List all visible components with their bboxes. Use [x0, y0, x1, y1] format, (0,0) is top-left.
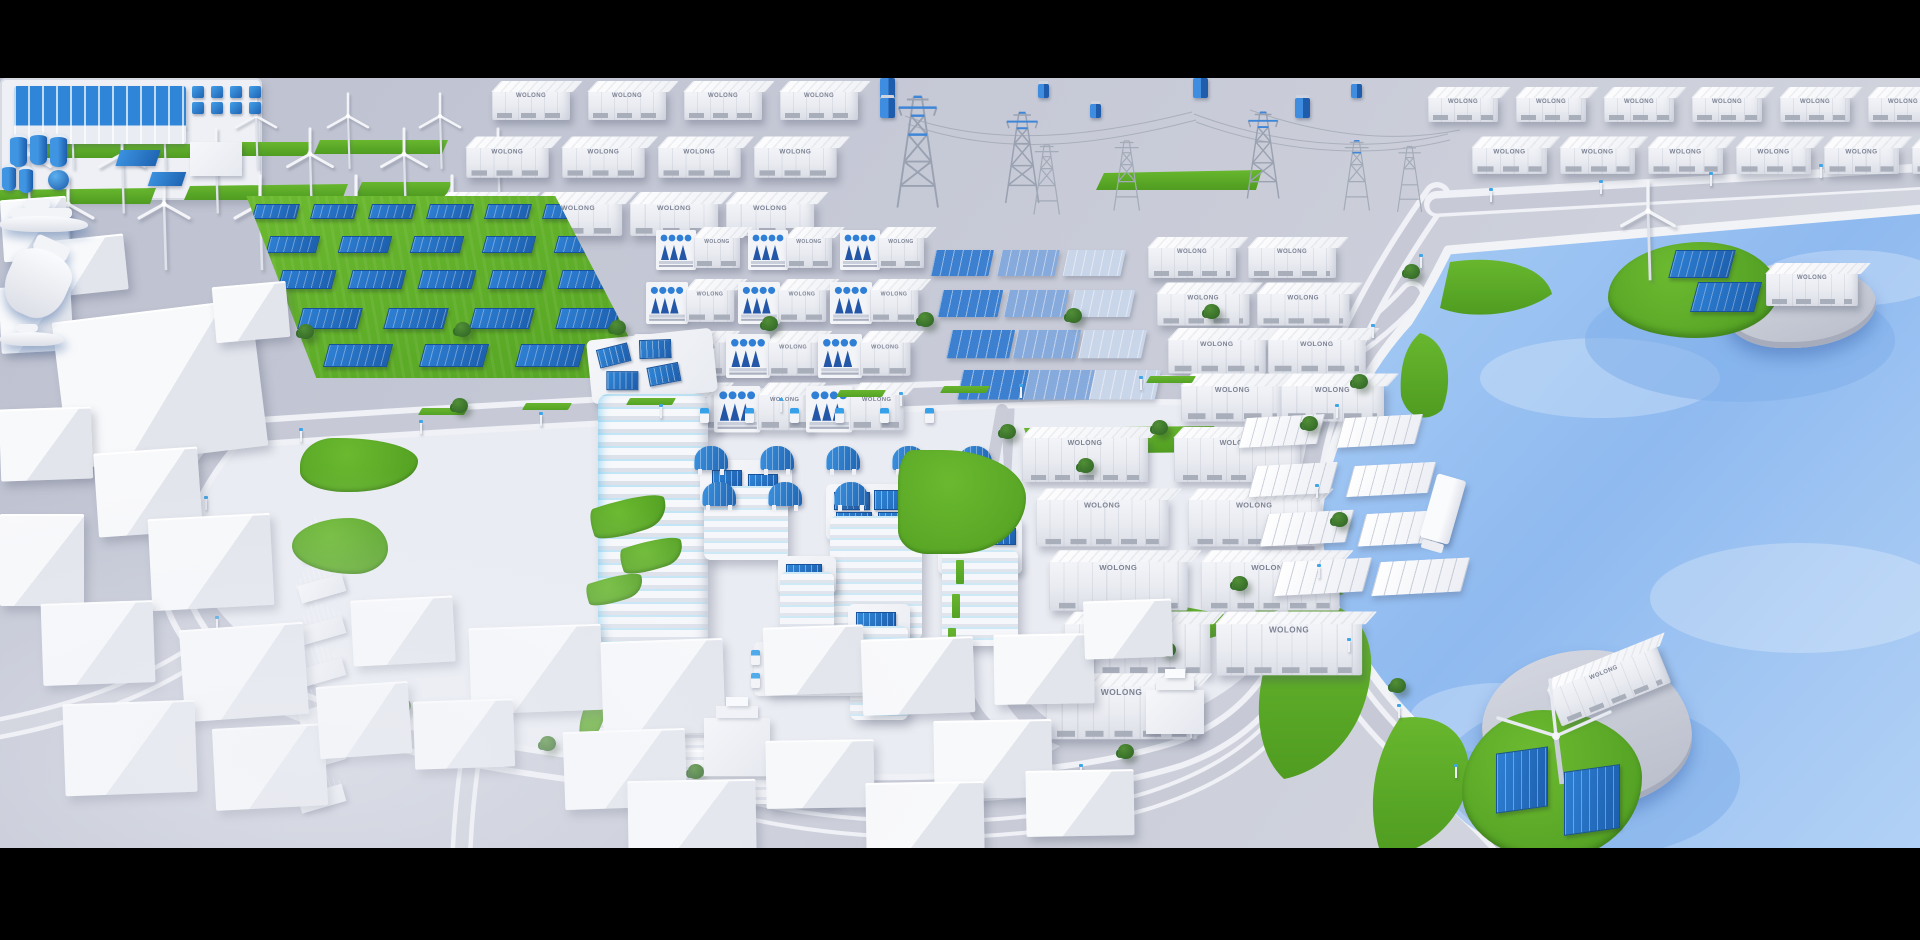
storage-yard-northeast: WOLONG WOLONGWOLONGWOLONGWOLONGWOLONGWOL… — [1428, 96, 1920, 172]
storage-container: WOLONG — [684, 90, 762, 120]
container-nameplate: WOLONG — [1669, 149, 1701, 155]
container-nameplate: WOLONG — [1757, 149, 1789, 155]
blue-bin — [230, 102, 242, 114]
solar-panel — [252, 204, 300, 219]
transmission-pylon — [1392, 140, 1427, 214]
road-median — [1146, 376, 1196, 383]
container-nameplate: WOLONG — [1269, 628, 1309, 635]
container-nameplate: WOLONG — [516, 93, 546, 99]
solar-panel — [1690, 282, 1762, 312]
battery-rack — [818, 334, 862, 378]
tree — [1232, 576, 1248, 591]
solar-carport — [694, 446, 728, 470]
transmission-pylon — [888, 86, 947, 210]
roof-solar-panel — [646, 362, 681, 387]
wind-turbine — [122, 174, 206, 274]
storage-container: WOLONG — [466, 146, 549, 178]
plant-building — [190, 142, 242, 176]
storage-tank — [2, 164, 16, 191]
street-lamp — [1600, 182, 1602, 194]
battery-cells-icon — [656, 230, 696, 270]
transformer — [1295, 98, 1310, 118]
equipment-bins — [192, 86, 264, 114]
battery-stack-unit: WOLONG — [748, 230, 832, 270]
sphere-tank — [48, 170, 69, 190]
tree — [540, 736, 556, 751]
city-building — [765, 739, 874, 809]
container-nameplate: WOLONG — [779, 149, 811, 155]
container-nameplate: WOLONG — [1797, 275, 1827, 281]
boat-hull — [0, 332, 64, 346]
container-nameplate: WOLONG — [697, 291, 724, 297]
blue-canopy — [115, 150, 160, 166]
ev-charger — [880, 408, 889, 423]
storage-container: WOLONG — [1604, 96, 1674, 122]
city-building — [993, 633, 1094, 705]
grid-substation — [880, 78, 1500, 278]
storage-container: WOLONG — [588, 90, 666, 120]
container-nameplate: WOLONG — [862, 396, 892, 403]
tree — [452, 398, 468, 413]
blue-bin — [249, 102, 261, 114]
tree — [688, 764, 704, 779]
street-lamp — [1316, 486, 1318, 498]
container-nameplate: WOLONG — [1101, 690, 1143, 697]
city-building — [1025, 769, 1134, 837]
blue-bin — [192, 102, 204, 114]
solar-panel — [1012, 330, 1081, 358]
street-lamp — [1820, 166, 1822, 178]
solar-panel — [323, 344, 393, 367]
solar-panel — [1496, 746, 1548, 813]
ev-charger — [700, 408, 709, 423]
letterbox-top — [0, 0, 1920, 78]
blue-bin — [230, 86, 242, 98]
tree — [1390, 678, 1406, 693]
solar-panel — [426, 204, 474, 219]
storage-container: WOLONG — [778, 288, 826, 322]
blue-canopy — [148, 172, 187, 186]
battery-stack-unit: WOLONG — [656, 230, 740, 270]
ev-charger — [835, 408, 844, 423]
tree — [1152, 420, 1168, 435]
city-building — [413, 698, 515, 769]
letterbox-bottom — [0, 848, 1920, 940]
solar-row — [254, 204, 588, 219]
transformer — [1090, 104, 1101, 118]
city-building — [41, 600, 156, 686]
battery-rack — [646, 282, 688, 324]
storage-container: WOLONG — [1216, 622, 1362, 675]
container-nameplate: WOLONG — [612, 93, 642, 99]
tree — [1204, 304, 1220, 319]
battery-rack — [830, 282, 872, 324]
storage-container: WOLONG — [1780, 96, 1850, 122]
street-lamp — [1372, 326, 1374, 338]
city-building — [861, 636, 976, 716]
street-lamp — [1336, 406, 1338, 418]
city-building — [0, 406, 93, 481]
city-building — [316, 681, 413, 759]
storage-container: WOLONG — [658, 146, 741, 178]
street-lamp — [900, 394, 902, 406]
container-nameplate: WOLONG — [1845, 149, 1877, 155]
battery-stack-unit: WOLONG — [830, 282, 918, 324]
container-nameplate: WOLONG — [1200, 341, 1233, 348]
solar-panel — [417, 270, 476, 289]
transformer — [880, 78, 895, 98]
storage-tank — [19, 166, 33, 193]
solar-carport — [768, 482, 802, 506]
storage-container: WOLONG — [1268, 338, 1366, 374]
street-lamp — [1398, 706, 1400, 718]
container-nameplate: WOLONG — [1536, 99, 1566, 105]
container-nameplate: WOLONG — [1187, 295, 1219, 301]
storage-container: WOLONG — [492, 90, 570, 120]
street-lamp — [420, 422, 422, 434]
transformer-bank — [880, 78, 1500, 98]
tree — [1332, 512, 1348, 527]
roof-solar-panel — [639, 339, 672, 359]
storage-tank — [10, 134, 27, 167]
tree — [1404, 264, 1420, 279]
storage-container: WOLONG — [562, 146, 645, 178]
solar-row — [268, 236, 606, 253]
energy-island-south: WOLONG — [1452, 630, 1752, 848]
solar-carport — [760, 446, 794, 470]
street-lamp — [1140, 378, 1142, 390]
city-building — [148, 513, 275, 611]
storage-container: WOLONG — [1257, 292, 1349, 326]
battery-rack — [840, 230, 880, 270]
battery-rack — [656, 230, 696, 270]
city-building — [627, 779, 756, 848]
container-nameplate: WOLONG — [1888, 99, 1918, 105]
storage-container: WOLONG — [1824, 146, 1899, 174]
storage-tank — [50, 134, 67, 167]
street-lamp — [1420, 256, 1422, 268]
city-render: WOLONG WOLONGWOLONGWOLONGWOLONGWOLONGWOL… — [0, 78, 1920, 848]
road-median — [836, 390, 886, 397]
boat-hull — [0, 216, 88, 232]
tree — [298, 324, 314, 339]
solar-carport — [834, 482, 868, 506]
road-median — [956, 560, 964, 584]
solar-panel — [469, 308, 535, 329]
container-nameplate: WOLONG — [770, 396, 800, 403]
solar-panel — [946, 330, 1015, 358]
storage-container: WOLONG — [1736, 146, 1811, 174]
tree — [1118, 744, 1134, 759]
blue-bin — [211, 86, 223, 98]
transformer — [1038, 84, 1049, 98]
ev-charger — [751, 673, 760, 688]
solar-panel — [1023, 370, 1095, 400]
container-nameplate: WOLONG — [657, 205, 691, 212]
city-building — [212, 281, 291, 343]
container-nameplate: WOLONG — [1099, 566, 1137, 573]
tree — [1302, 416, 1318, 431]
storage-container: WOLONG — [1036, 498, 1168, 546]
city-building — [62, 700, 197, 797]
solar-carport — [826, 446, 860, 470]
tree — [455, 322, 471, 337]
city-building — [179, 622, 309, 722]
battery-cells-icon — [818, 334, 862, 378]
white-solar-canopy — [1273, 557, 1373, 596]
solar-panel — [310, 204, 358, 219]
road-median — [522, 403, 572, 410]
container-nameplate: WOLONG — [796, 239, 821, 245]
battery-stack-unit: WOLONG — [726, 334, 818, 378]
blue-bin — [192, 86, 204, 98]
solar-panel — [368, 204, 416, 219]
container-nameplate: WOLONG — [1215, 388, 1250, 395]
tree — [1066, 308, 1082, 323]
container-nameplate: WOLONG — [561, 205, 595, 212]
container-nameplate: WOLONG — [1624, 99, 1654, 105]
solar-panel — [1564, 764, 1620, 836]
container-nameplate: WOLONG — [871, 344, 899, 351]
solar-panel — [1003, 290, 1069, 317]
storage-container: WOLONG — [860, 341, 911, 376]
battery-cells-icon — [840, 230, 880, 270]
solar-panel — [266, 236, 321, 253]
street-lamp — [1710, 174, 1712, 186]
street-lamp — [1490, 190, 1492, 202]
transformer — [1351, 84, 1362, 98]
solar-panel — [487, 270, 546, 289]
tree — [1352, 374, 1368, 389]
container-nameplate: WOLONG — [1800, 99, 1830, 105]
street-lamp — [1348, 640, 1350, 652]
container-nameplate: WOLONG — [1300, 341, 1333, 348]
street-lamp — [300, 430, 302, 442]
storage-tank — [30, 132, 47, 165]
storage-container: WOLONG — [1912, 146, 1920, 174]
storage-container: WOLONG — [870, 288, 918, 322]
container-nameplate: WOLONG — [779, 344, 807, 351]
storage-container: WOLONG — [754, 146, 837, 178]
ev-charger — [751, 650, 760, 665]
battery-cells-icon — [830, 282, 872, 324]
transformer — [1193, 78, 1208, 98]
solar-panel — [338, 236, 393, 253]
solar-panel — [484, 204, 532, 219]
storage-container: WOLONG — [694, 236, 740, 268]
battery-rack — [748, 230, 788, 270]
battery-stack-unit: WOLONG — [818, 334, 910, 378]
city-building — [865, 781, 984, 848]
stepped-tower — [1146, 690, 1204, 734]
container-nameplate: WOLONG — [1084, 503, 1120, 509]
storage-container: WOLONG — [768, 341, 819, 376]
solar-panel — [482, 236, 537, 253]
storage-container: WOLONG — [1648, 146, 1723, 174]
street-lamp — [540, 414, 542, 426]
transmission-pylon — [1338, 134, 1375, 212]
ev-charger — [745, 408, 754, 423]
battery-cells-icon — [726, 334, 770, 378]
street-lamp — [1020, 386, 1022, 398]
city-building — [212, 723, 328, 811]
white-solar-canopies — [1246, 418, 1442, 592]
ferry-boat — [0, 324, 66, 352]
battery-cells-icon — [646, 282, 688, 324]
blue-bin — [249, 86, 261, 98]
wind-turbine — [1604, 180, 1692, 285]
transformer — [880, 98, 895, 118]
white-solar-canopy — [1248, 462, 1339, 497]
container-nameplate: WOLONG — [753, 205, 787, 212]
stepped-tower — [704, 718, 770, 776]
transmission-pylon — [1028, 138, 1065, 216]
blue-bin — [211, 102, 223, 114]
boat-bridge — [16, 324, 38, 332]
street-lamp — [780, 400, 782, 412]
solar-panel — [410, 236, 465, 253]
solar-panel — [419, 344, 489, 367]
battery-stack-unit: WOLONG — [646, 282, 734, 324]
white-solar-canopy — [1336, 414, 1423, 448]
container-nameplate: WOLONG — [1315, 388, 1350, 395]
battery-rack — [726, 334, 770, 378]
ferry-boat — [0, 200, 90, 234]
roof-solar-panel — [606, 371, 638, 390]
container-nameplate: WOLONG — [1287, 295, 1319, 301]
tree — [1078, 458, 1094, 473]
tree — [610, 320, 626, 335]
white-solar-canopy — [1346, 462, 1437, 497]
container-nameplate: WOLONG — [789, 291, 816, 297]
storage-container: WOLONG — [1766, 272, 1858, 306]
solar-panel — [515, 344, 585, 367]
storage-container: WOLONG — [1516, 96, 1586, 122]
ev-charger-row — [700, 408, 934, 423]
street-lamp — [205, 498, 207, 510]
container-nameplate: WOLONG — [704, 239, 729, 245]
container-nameplate: WOLONG — [491, 149, 523, 155]
container-nameplate: WOLONG — [1581, 149, 1613, 155]
transmission-pylon — [1108, 134, 1145, 212]
solar-panel — [1078, 330, 1147, 358]
container-nameplate: WOLONG — [881, 291, 908, 297]
road-median — [952, 594, 960, 618]
container-nameplate: WOLONG — [1712, 99, 1742, 105]
storage-container: WOLONG — [1692, 96, 1762, 122]
city-building — [0, 514, 84, 606]
ev-charger — [790, 408, 799, 423]
transformer-bank — [880, 98, 1500, 118]
storage-container: WOLONG — [780, 90, 858, 120]
white-solar-canopy — [1371, 557, 1471, 596]
energy-island-north: WOLONG — [1598, 206, 1898, 406]
solar-carport — [702, 482, 736, 506]
storage-container: WOLONG — [786, 236, 832, 268]
city-building — [350, 595, 455, 666]
road-median — [626, 398, 676, 405]
solar-panel — [277, 270, 336, 289]
transmission-pylon — [1240, 104, 1286, 201]
storage-container: WOLONG — [1868, 96, 1920, 122]
ev-charger — [925, 408, 934, 423]
storage-container: WOLONG — [686, 288, 734, 322]
solar-panel — [347, 270, 406, 289]
tree — [1000, 424, 1016, 439]
container-nameplate: WOLONG — [804, 93, 834, 99]
solar-panel — [1089, 370, 1161, 400]
solar-panel — [937, 290, 1003, 317]
storage-container: WOLONG — [1168, 338, 1266, 374]
battery-stack-unit: WOLONG — [738, 282, 826, 324]
roof-solar-panel — [596, 342, 632, 368]
container-nameplate: WOLONG — [1068, 441, 1103, 447]
container-nameplate: WOLONG — [587, 149, 619, 155]
solar-panel — [383, 308, 449, 329]
city-building — [763, 624, 865, 695]
street-lamp — [1318, 566, 1320, 578]
container-nameplate: WOLONG — [708, 93, 738, 99]
container-nameplate: WOLONG — [683, 149, 715, 155]
tree — [918, 312, 934, 327]
tree — [762, 316, 778, 331]
city-building — [1083, 598, 1173, 659]
road-median — [940, 386, 990, 393]
battery-cells-icon — [748, 230, 788, 270]
street-lamp — [660, 406, 662, 418]
tower-roof — [586, 328, 718, 405]
storage-container: WOLONG — [1560, 146, 1635, 174]
